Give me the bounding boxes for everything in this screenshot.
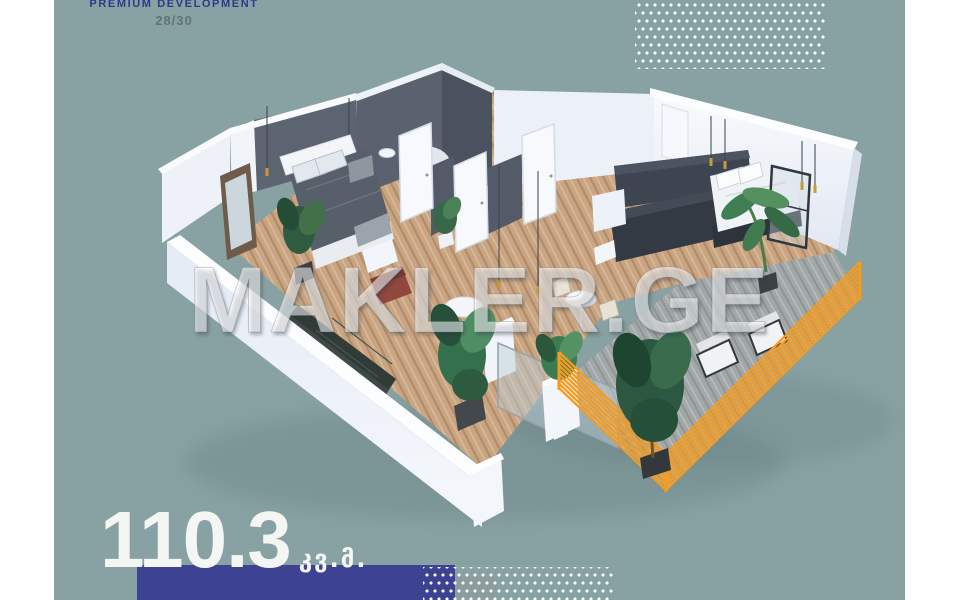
dot-pattern-bottom (423, 567, 613, 600)
area-unit: კვ.მ. (299, 545, 368, 573)
listing-canvas: PREMIUM DEVELOPMENT 28/30 MAKLER.GE 110.… (54, 0, 905, 600)
area-value: 110.3 (100, 500, 291, 580)
development-title: PREMIUM DEVELOPMENT (84, 0, 264, 10)
watermark: MAKLER.GE (189, 246, 771, 354)
area-label: 110.3 კვ.მ. (100, 500, 368, 580)
header: PREMIUM DEVELOPMENT 28/30 (84, 0, 264, 28)
development-subtitle: 28/30 (84, 13, 264, 28)
dot-pattern-top-right (635, 0, 825, 69)
